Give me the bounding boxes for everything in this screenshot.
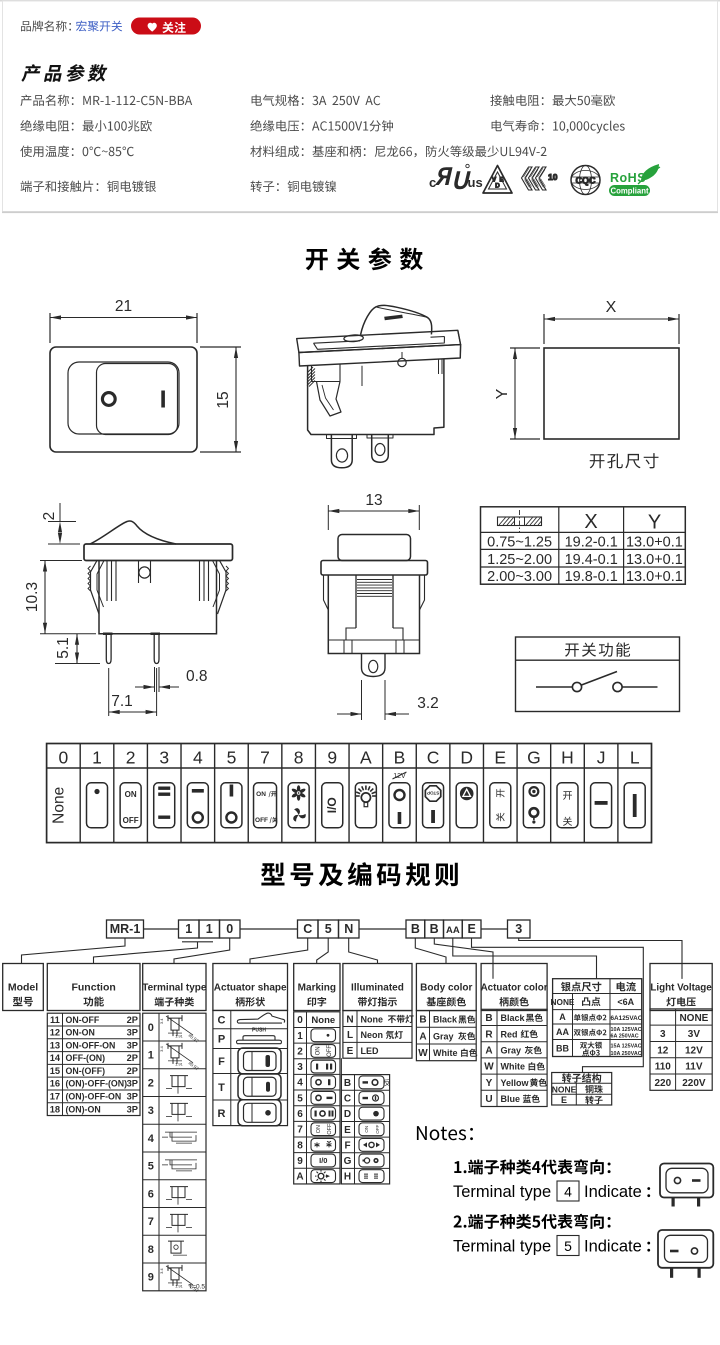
svg-text:5: 5 [148,1161,154,1173]
svg-text:W: W [484,1062,494,1073]
svg-text:3: 3 [159,748,169,768]
svg-text:0: 0 [297,1015,303,1026]
svg-text:J: J [597,748,606,768]
svg-text:L: L [347,1030,353,1041]
svg-text:10A 125VAC: 10A 125VAC [611,1027,642,1033]
svg-text:ON: ON [316,1125,322,1133]
svg-text:4: 4 [193,748,203,768]
svg-text:4: 4 [297,1078,303,1089]
svg-text:0.75~1.25: 0.75~1.25 [487,535,552,551]
svg-text:(ON)-OFF-(ON): (ON)-OFF-(ON) [66,1079,128,1089]
svg-text:B: B [344,1078,351,1089]
svg-text:220V: 220V [682,1078,706,1089]
svg-text:18: 18 [50,1104,60,1114]
svg-text:D: D [344,1109,351,1120]
svg-text:12V: 12V [393,773,406,780]
svg-text:OFF: OFF [123,816,139,825]
svg-text:BB: BB [556,1044,569,1054]
svg-text:13: 13 [365,492,382,509]
svg-text:H: H [561,748,574,768]
svg-text:B: B [394,748,406,768]
svg-text:1: 1 [206,922,213,936]
svg-text:13.0+0.1: 13.0+0.1 [626,552,683,568]
svg-text:G: G [527,748,541,768]
svg-text:12: 12 [657,1045,669,1056]
svg-text:3P: 3P [127,1040,138,1050]
svg-text:D: D [495,183,500,190]
svg-text:W: W [418,1048,428,1059]
svg-text:3.4: 3.4 [159,1018,164,1024]
svg-text:1.25~2.00: 1.25~2.00 [487,552,552,568]
svg-text:Red: Red [501,1029,518,1039]
svg-text:F: F [218,1056,225,1068]
svg-text:1.91: 1.91 [175,1283,184,1288]
svg-text:B: B [430,922,439,936]
svg-text:N: N [344,922,353,936]
svg-text:3.4: 3.4 [159,1046,164,1052]
svg-text:OFF: OFF [327,1045,333,1057]
svg-text:C: C [303,922,312,936]
svg-text:12: 12 [50,1028,60,1038]
svg-text:19.4-0.1: 19.4-0.1 [565,552,618,568]
svg-text:Light Voltage: Light Voltage [650,983,712,994]
svg-text:ON-OFF-ON: ON-OFF-ON [66,1040,116,1050]
svg-text:14: 14 [50,1053,61,1063]
svg-text:4: 4 [148,1133,155,1145]
svg-text:#0.92: #0.92 [187,1061,199,1072]
svg-text:C: C [427,748,440,768]
svg-text:G: G [344,1156,352,1167]
svg-text:13.0+0.1: 13.0+0.1 [626,569,683,585]
svg-text:Model: Model [8,982,38,994]
svg-text:LED: LED [361,1046,380,1056]
svg-text:OFF: OFF [255,817,268,824]
svg-text:7.1: 7.1 [111,693,133,710]
svg-text:3V: 3V [688,1029,701,1040]
svg-text:B: B [419,1015,426,1026]
svg-text:0: 0 [59,748,69,768]
svg-text:Terminal type: Terminal type [142,983,207,994]
svg-text:6: 6 [297,1109,303,1120]
svg-text:Marking: Marking [298,983,336,994]
svg-text:U: U [485,1094,492,1105]
svg-text:Body color: Body color [420,983,472,994]
svg-text:16: 16 [50,1079,60,1089]
svg-text:6A125VAC: 6A125VAC [611,1015,643,1022]
svg-text:ON-ON: ON-ON [66,1028,95,1038]
svg-text:8: 8 [297,1140,303,1151]
svg-text:Actuator color: Actuator color [481,983,548,994]
svg-text:Blue: Blue [501,1094,521,1104]
svg-text:Yellow: Yellow [501,1078,530,1088]
svg-text:B: B [411,922,420,936]
svg-text:Y: Y [494,388,511,399]
svg-text:Y: Y [648,512,661,534]
svg-text:L: L [630,748,640,768]
svg-text:OFF-(ON): OFF-(ON) [66,1053,106,1063]
svg-text:E: E [561,1095,567,1105]
svg-text:1.91: 1.91 [175,1061,184,1066]
svg-text:Terminal type: Terminal type [453,1238,551,1256]
svg-text:ON: ON [256,791,266,798]
svg-text:2: 2 [41,512,58,521]
svg-text:None: None [50,787,67,824]
svg-text:3P: 3P [127,1092,138,1102]
svg-text:1: 1 [297,1031,303,1042]
svg-text:6: 6 [148,1188,154,1200]
svg-text:19.2-0.1: 19.2-0.1 [565,535,618,551]
svg-text:0: 0 [148,1022,154,1034]
svg-text:2P: 2P [127,1066,138,1076]
svg-text:2P: 2P [127,1053,138,1063]
svg-text:3: 3 [148,1105,154,1117]
svg-text:15: 15 [50,1066,60,1076]
svg-text:ON-OFF: ON-OFF [66,1015,100,1025]
svg-text:ON-(OFF): ON-(OFF) [66,1066,106,1076]
svg-text:X: X [606,299,617,316]
svg-text:ON: ON [125,790,137,799]
svg-text:OFF: OFF [327,1123,333,1135]
svg-text:#0.92: #0.92 [187,1033,199,1044]
svg-text:17: 17 [50,1092,60,1102]
svg-text:AA: AA [556,1027,569,1037]
svg-text:E: E [347,1046,354,1057]
svg-text:Actuator shape: Actuator shape [214,983,287,994]
svg-text:3.2: 3.2 [417,695,439,712]
svg-text:NONE: NONE [552,1084,577,1094]
svg-text:8: 8 [148,1244,154,1256]
svg-text:c: c [429,175,436,190]
svg-text:15A 125VAC: 15A 125VAC [611,1044,642,1050]
svg-text:10A 250VAC: 10A 250VAC [611,1051,642,1057]
svg-text:A: A [419,1031,426,1042]
svg-text:Compliant: Compliant [610,187,649,196]
svg-text:0: 0 [226,922,233,936]
svg-text:1.91: 1.91 [175,1034,184,1039]
svg-text:0.8: 0.8 [186,668,208,685]
svg-text:(ON)-ON: (ON)-ON [66,1104,101,1114]
svg-text:2.00~3.00: 2.00~3.00 [487,569,552,585]
svg-text:Neon: Neon [361,1030,384,1040]
svg-text:Indicate: Indicate [584,1183,642,1201]
svg-text:7: 7 [297,1125,303,1136]
svg-text:E: E [467,922,475,936]
svg-text:<6A: <6A [617,997,634,1007]
svg-text:None: None [311,1015,335,1026]
svg-text:7: 7 [260,748,270,768]
svg-text:1: 1 [92,748,102,768]
svg-text:I/0: I/0 [319,1156,327,1165]
svg-text:B: B [485,1013,492,1024]
svg-text:I/O: I/O [325,797,339,813]
svg-text:15: 15 [215,391,232,408]
svg-text:RoHS: RoHS [610,171,646,185]
svg-text:AA: AA [446,925,460,936]
svg-text:10.3: 10.3 [24,582,41,612]
svg-text:110: 110 [655,1062,672,1073]
svg-text:ON: ON [364,1126,369,1133]
svg-text:MR-1: MR-1 [110,922,141,936]
svg-text:ON: ON [316,1046,322,1055]
svg-text:NONE: NONE [551,997,575,1007]
svg-text:3.4: 3.4 [159,1268,164,1274]
svg-text:9: 9 [327,748,337,768]
svg-text:us: us [468,175,483,190]
svg-text:Black: Black [501,1013,526,1023]
svg-text:Gray: Gray [501,1046,522,1056]
svg-text:CQC: CQC [576,176,597,186]
svg-text:2: 2 [148,1077,154,1089]
svg-text:2: 2 [126,748,136,768]
svg-text:R: R [218,1108,226,1120]
svg-text:7: 7 [148,1216,154,1228]
svg-text:PUSH: PUSH [252,1028,266,1034]
svg-text:E: E [494,748,506,768]
svg-text:Black: Black [433,1015,458,1025]
svg-text:STOP: STOP [427,790,439,795]
svg-text:(ON)-OFF-ON: (ON)-OFF-ON [66,1092,122,1102]
svg-text:9: 9 [297,1156,303,1167]
svg-text:Gray: Gray [433,1031,454,1041]
svg-text:A: A [559,1012,566,1022]
svg-text:2P: 2P [127,1015,138,1025]
svg-text:X: X [584,511,597,533]
svg-text:13: 13 [50,1040,60,1050]
svg-text:2: 2 [297,1046,303,1057]
svg-text:White: White [433,1048,458,1058]
svg-text:11V: 11V [685,1062,703,1073]
svg-text:8: 8 [294,748,304,768]
svg-text:1: 1 [185,922,192,936]
svg-text:Y: Y [486,1078,493,1089]
svg-text:P: P [218,1034,225,1046]
svg-text:A: A [360,748,372,768]
svg-text:D: D [460,748,473,768]
svg-text:3P: 3P [127,1079,138,1089]
svg-text:11: 11 [50,1015,60,1025]
svg-text:3: 3 [660,1029,666,1040]
svg-text:C: C [344,1094,351,1105]
svg-text:Indicate: Indicate [584,1238,642,1256]
svg-text:R: R [485,1029,493,1040]
svg-text:Function: Function [71,982,115,994]
svg-text:White: White [501,1062,526,1072]
svg-text:N: N [346,1014,353,1025]
svg-text:5: 5 [564,1238,572,1254]
svg-text:F: F [344,1140,350,1151]
svg-text:E: E [499,177,504,184]
svg-text:Terminal type: Terminal type [453,1183,551,1201]
svg-text:21: 21 [115,298,132,315]
svg-text:3P: 3P [127,1028,138,1038]
svg-text:5.1: 5.1 [55,637,72,659]
svg-text:3P: 3P [127,1104,138,1114]
svg-text:4: 4 [564,1184,572,1200]
svg-text:9: 9 [148,1272,154,1284]
svg-text:A: A [296,1172,303,1183]
svg-text:T: T [218,1082,225,1094]
svg-text:Illuminated: Illuminated [351,983,404,994]
svg-text:A: A [485,1046,492,1057]
svg-text:NONE: NONE [679,1013,708,1024]
svg-text:3: 3 [515,922,522,936]
svg-text:10: 10 [548,172,558,182]
svg-text:220: 220 [654,1078,671,1089]
svg-text:H: H [344,1172,351,1183]
svg-text:C: C [218,1015,226,1027]
svg-text:13.0+0.1: 13.0+0.1 [626,535,683,551]
svg-text:T=0.5: T=0.5 [188,1283,205,1290]
svg-text:5: 5 [297,1093,303,1104]
svg-text:19.8-0.1: 19.8-0.1 [565,569,618,585]
svg-text:12V: 12V [685,1045,703,1056]
svg-text:3: 3 [297,1062,303,1073]
svg-text:OFF: OFF [375,1125,380,1134]
svg-text:5: 5 [325,922,332,936]
svg-text:E: E [344,1125,351,1136]
svg-text:1: 1 [148,1050,154,1062]
svg-text:None: None [361,1014,384,1024]
svg-text:5: 5 [227,748,237,768]
svg-text:6A 250VAC: 6A 250VAC [611,1034,639,1040]
